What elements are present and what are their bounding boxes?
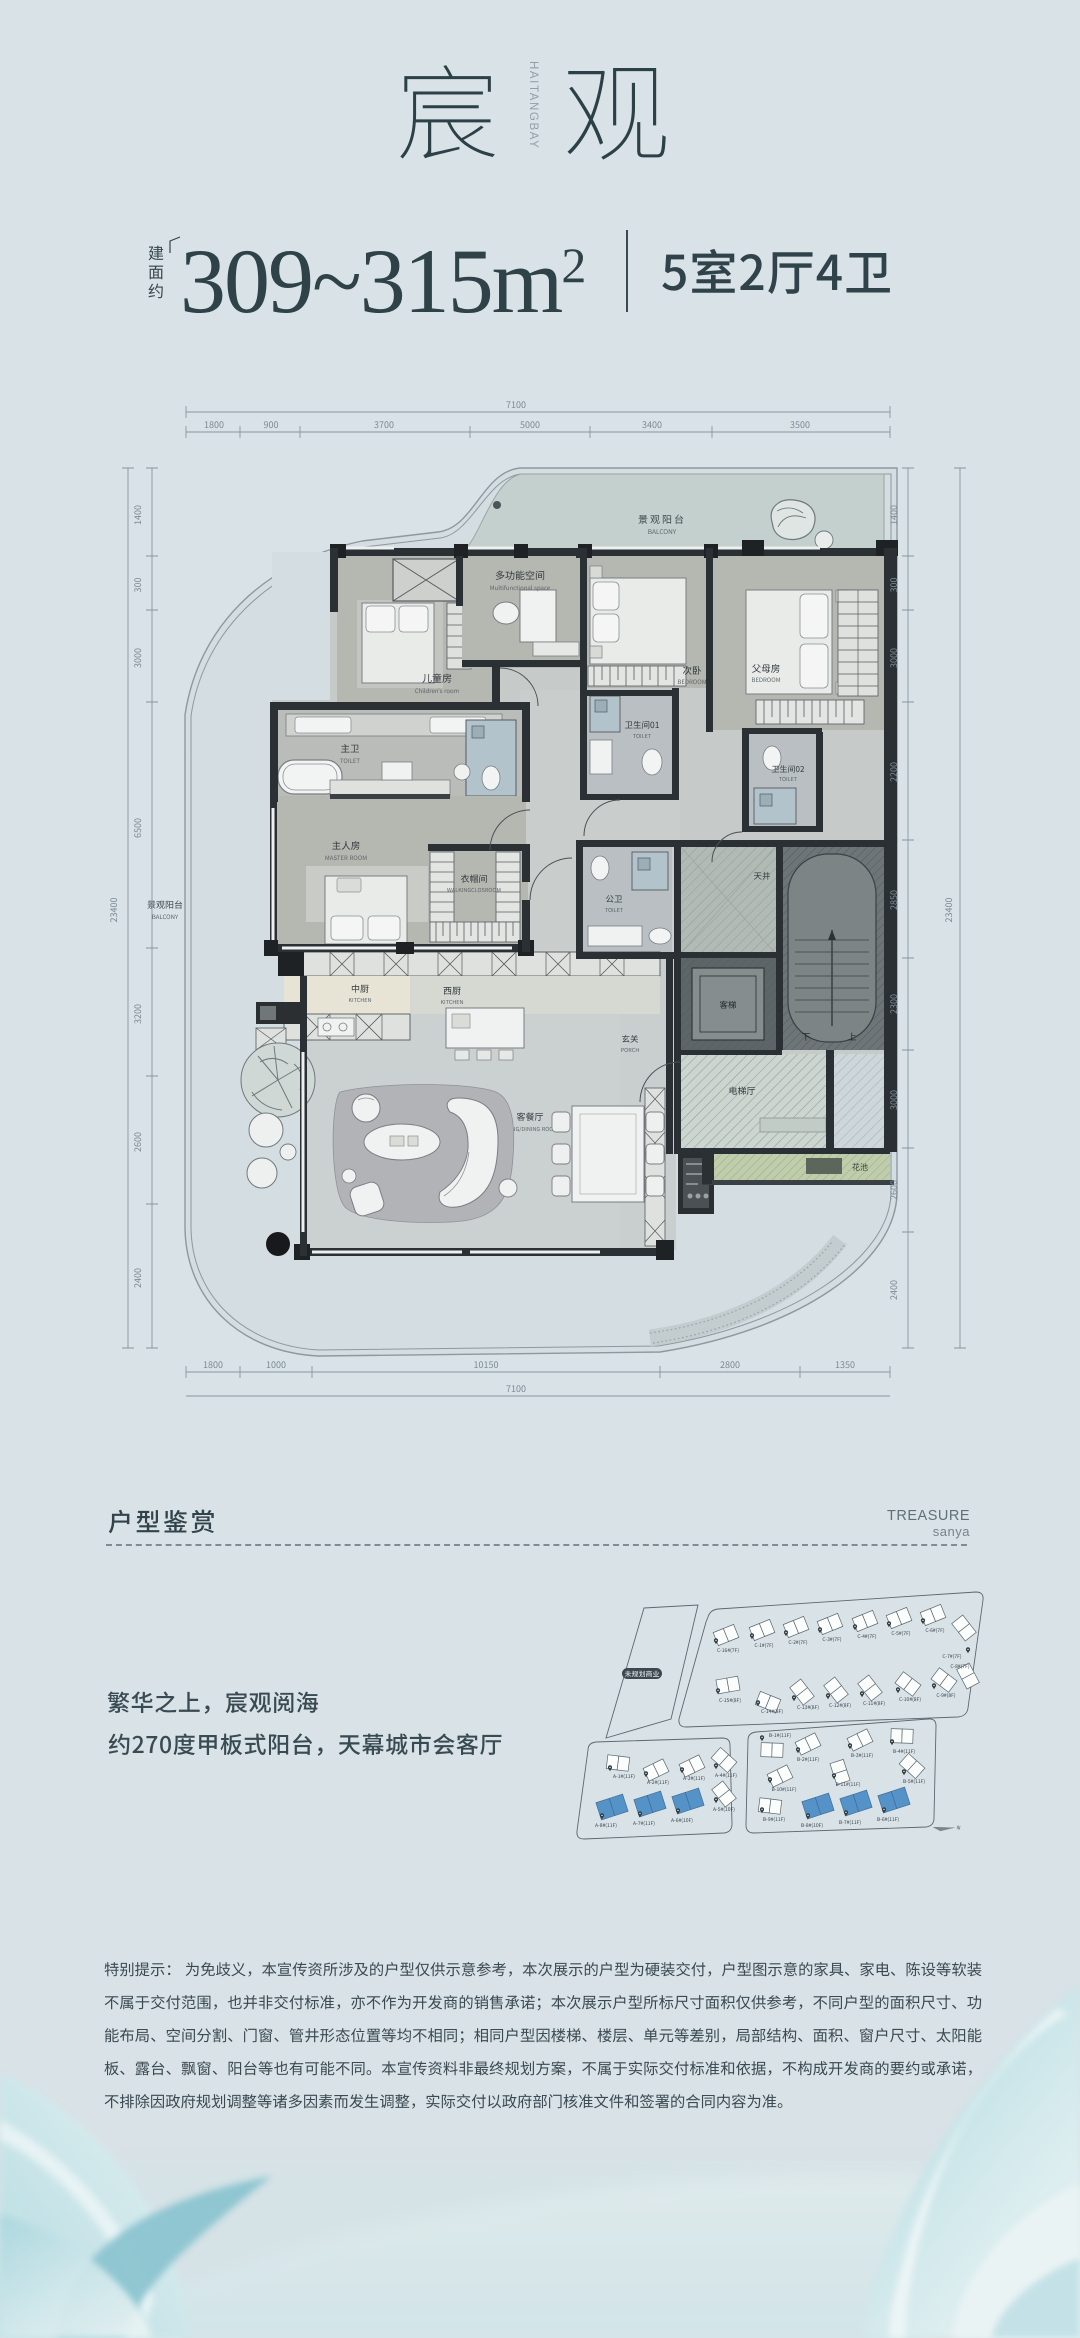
svg-text:B-3#(11F): B-3#(11F) (851, 1752, 874, 1759)
svg-text:衣帽间: 衣帽间 (460, 872, 487, 885)
svg-text:3500: 3500 (790, 418, 810, 431)
svg-text:2600: 2600 (131, 1132, 144, 1152)
svg-text:7100: 7100 (506, 398, 526, 411)
svg-text:B-10#(11F): B-10#(11F) (771, 1786, 796, 1793)
svg-text:C-6#(7F): C-6#(7F) (925, 1627, 945, 1634)
svg-text:B-7#(11F): B-7#(11F) (839, 1819, 862, 1826)
svg-text:3000: 3000 (131, 648, 144, 668)
svg-text:2800: 2800 (720, 1358, 740, 1371)
svg-text:BEDROOM: BEDROOM (751, 675, 780, 684)
svg-text:C-12#(8F): C-12#(8F) (829, 1702, 851, 1709)
svg-text:3200: 3200 (131, 1004, 144, 1024)
svg-text:BEDROOM: BEDROOM (677, 677, 706, 686)
svg-text:B-2#(11F): B-2#(11F) (797, 1756, 820, 1763)
svg-text:C-8#(7F): C-8#(7F) (950, 1663, 970, 1670)
svg-text:1400: 1400 (131, 505, 144, 525)
svg-text:玄关: 玄关 (621, 1033, 639, 1045)
svg-text:下: 下 (801, 1030, 810, 1043)
svg-text:2400: 2400 (887, 1280, 900, 1300)
svg-text:TOILET: TOILET (633, 732, 652, 740)
svg-text:3000: 3000 (887, 648, 900, 668)
svg-text:KITCHEN: KITCHEN (348, 996, 371, 1004)
svg-text:WALKINGCLOSROOM: WALKINGCLOSROOM (447, 886, 501, 894)
svg-text:3700: 3700 (374, 418, 394, 431)
svg-text:1800: 1800 (203, 1358, 223, 1371)
svg-text:西厨: 西厨 (443, 984, 461, 997)
svg-text:C-13#(8F): C-13#(8F) (797, 1704, 819, 1711)
svg-text:A-4#(11F): A-4#(11F) (715, 1772, 737, 1779)
svg-text:A-1#(11F): A-1#(11F) (613, 1773, 635, 1780)
svg-text:主卫: 主卫 (340, 741, 360, 755)
svg-text:BALCONY: BALCONY (648, 526, 677, 536)
svg-text:2400: 2400 (131, 1268, 144, 1288)
svg-text:B-11#(11F): B-11#(11F) (835, 1781, 860, 1788)
svg-text:主人房: 主人房 (332, 838, 361, 852)
svg-text:C-14#(8F): C-14#(8F) (761, 1708, 783, 1715)
svg-text:次卧: 次卧 (682, 663, 702, 677)
svg-text:卫生间01: 卫生间01 (625, 719, 660, 731)
svg-text:1400: 1400 (887, 505, 900, 525)
svg-text:6500: 6500 (131, 818, 144, 838)
svg-text:7100: 7100 (506, 1382, 526, 1395)
svg-text:1800: 1800 (204, 418, 224, 431)
svg-text:A-8#(11F): A-8#(11F) (595, 1822, 617, 1829)
svg-text:客梯: 客梯 (719, 999, 737, 1011)
svg-text:TOILET: TOILET (340, 756, 360, 765)
svg-text:1350: 1350 (835, 1358, 855, 1371)
svg-text:C-11#(8F): C-11#(8F) (863, 1700, 885, 1707)
svg-text:10150: 10150 (474, 1358, 499, 1371)
svg-text:父母房: 父母房 (752, 661, 781, 675)
svg-text:23400: 23400 (942, 898, 955, 923)
svg-text:A-2#(11F): A-2#(11F) (647, 1779, 669, 1786)
svg-text:Children's room: Children's room (415, 686, 460, 695)
svg-text:C-16#(7F): C-16#(7F) (717, 1647, 739, 1654)
svg-text:B-9#(11F): B-9#(11F) (763, 1816, 786, 1823)
svg-text:电梯厅: 电梯厅 (728, 1084, 755, 1097)
svg-text:KITCHEN: KITCHEN (440, 998, 463, 1006)
svg-text:300: 300 (887, 578, 900, 593)
svg-text:B-4#(11F): B-4#(11F) (893, 1748, 916, 1755)
svg-text:MASTER ROOM: MASTER ROOM (325, 853, 367, 862)
svg-text:23400: 23400 (107, 898, 120, 923)
svg-text:C-4#(7F): C-4#(7F) (857, 1633, 877, 1640)
svg-text:客餐厅: 客餐厅 (516, 1110, 543, 1123)
svg-text:C-2#(7F): C-2#(7F) (788, 1639, 808, 1646)
svg-text:C-7#(7F): C-7#(7F) (942, 1653, 962, 1660)
svg-text:5000: 5000 (520, 418, 540, 431)
svg-text:A-3#(11F): A-3#(11F) (683, 1775, 705, 1782)
svg-text:上: 上 (847, 1030, 856, 1043)
svg-text:C-15#(8F): C-15#(8F) (719, 1697, 741, 1704)
svg-text:B-5#(11F): B-5#(11F) (903, 1778, 926, 1785)
svg-text:2200: 2200 (887, 762, 900, 782)
svg-text:2850: 2850 (887, 890, 900, 910)
svg-text:公卫: 公卫 (605, 893, 623, 905)
svg-text:花池: 花池 (852, 1162, 868, 1173)
svg-text:TOILET: TOILET (605, 906, 624, 914)
svg-text:景观阳台: 景观阳台 (638, 511, 686, 526)
svg-text:B-8#(10F): B-8#(10F) (801, 1822, 824, 1829)
svg-text:儿童房: 儿童房 (422, 670, 452, 685)
svg-text:C-3#(7F): C-3#(7F) (822, 1636, 842, 1643)
svg-text:3400: 3400 (642, 418, 662, 431)
svg-text:A-7#(11F): A-7#(11F) (633, 1820, 655, 1827)
svg-text:2300: 2300 (887, 994, 900, 1014)
svg-text:卫生间02: 卫生间02 (772, 764, 805, 775)
svg-text:N: N (956, 1824, 962, 1832)
svg-text:A-5#(10F): A-5#(10F) (713, 1806, 735, 1813)
svg-text:中厨: 中厨 (351, 982, 369, 995)
svg-text:C-9#(8F): C-9#(8F) (936, 1692, 956, 1699)
svg-text:B-6#(11F): B-6#(11F) (877, 1816, 900, 1823)
svg-text:300: 300 (131, 578, 144, 593)
svg-text:C-5#(7F): C-5#(7F) (891, 1630, 911, 1637)
svg-text:PORCH: PORCH (621, 1046, 640, 1054)
svg-text:900: 900 (264, 418, 279, 431)
svg-text:多功能空间: 多功能空间 (495, 567, 545, 582)
svg-text:2600: 2600 (887, 1180, 900, 1200)
svg-text:A-6#(10F): A-6#(10F) (671, 1817, 693, 1824)
svg-text:天井: 天井 (753, 870, 770, 882)
svg-text:未规划商业: 未规划商业 (625, 1670, 660, 1680)
svg-text:C-10#(8F): C-10#(8F) (899, 1696, 921, 1703)
svg-text:BALCONY: BALCONY (152, 912, 179, 921)
svg-text:C-1#(7F): C-1#(7F) (754, 1642, 774, 1649)
svg-text:3000: 3000 (887, 1090, 900, 1110)
svg-text:1000: 1000 (266, 1358, 286, 1371)
svg-text:B-1#(11F): B-1#(11F) (769, 1732, 792, 1739)
svg-text:TOILET: TOILET (779, 775, 798, 783)
svg-text:Multifunctional space: Multifunctional space (490, 583, 551, 592)
